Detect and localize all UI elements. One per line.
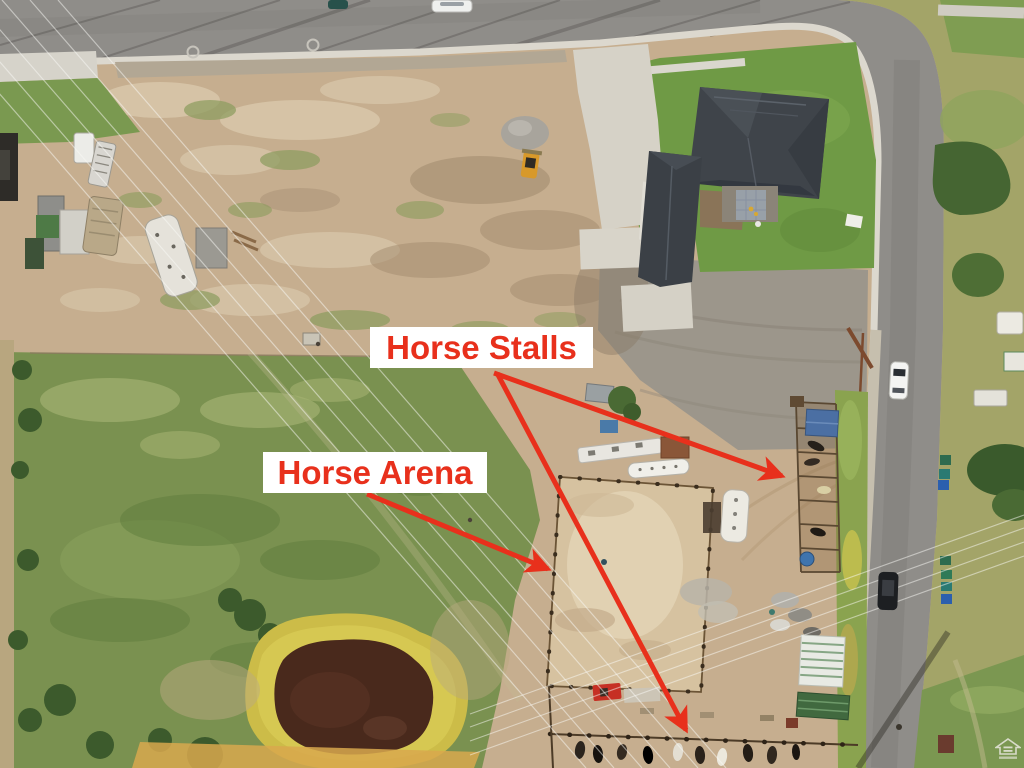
green-trailer (25, 238, 44, 269)
black-car-right (877, 572, 898, 611)
equal-housing-logo-icon (995, 738, 1021, 766)
green-roof-shed (36, 215, 59, 238)
white-shed (1004, 352, 1024, 371)
white-trailer (974, 390, 1007, 406)
aerial-photo: Horse Stalls Horse Arena (0, 0, 1024, 768)
horse-arena-label: Horse Arena (263, 452, 487, 493)
concrete-pad (621, 282, 693, 332)
stamped-concrete (736, 190, 766, 220)
greenhouse-shed (799, 635, 846, 687)
tan-rv (82, 196, 123, 256)
horse-stalls-label: Horse Stalls (370, 327, 593, 368)
blue-barrel (800, 552, 814, 566)
white-vehicle (997, 312, 1023, 334)
aerial-photo-svg (0, 0, 1024, 768)
teal-car (328, 0, 348, 9)
white-rv-vertical (720, 489, 750, 543)
red-shed (938, 735, 954, 753)
blue-truck (600, 420, 618, 433)
hay-pile (817, 486, 831, 494)
white-car-right (889, 362, 909, 400)
white-car-top (432, 0, 472, 12)
gray-trailer (196, 228, 227, 268)
green-panel-shed (796, 692, 850, 720)
dark-pit (703, 502, 721, 533)
person-in-arena (601, 559, 607, 565)
